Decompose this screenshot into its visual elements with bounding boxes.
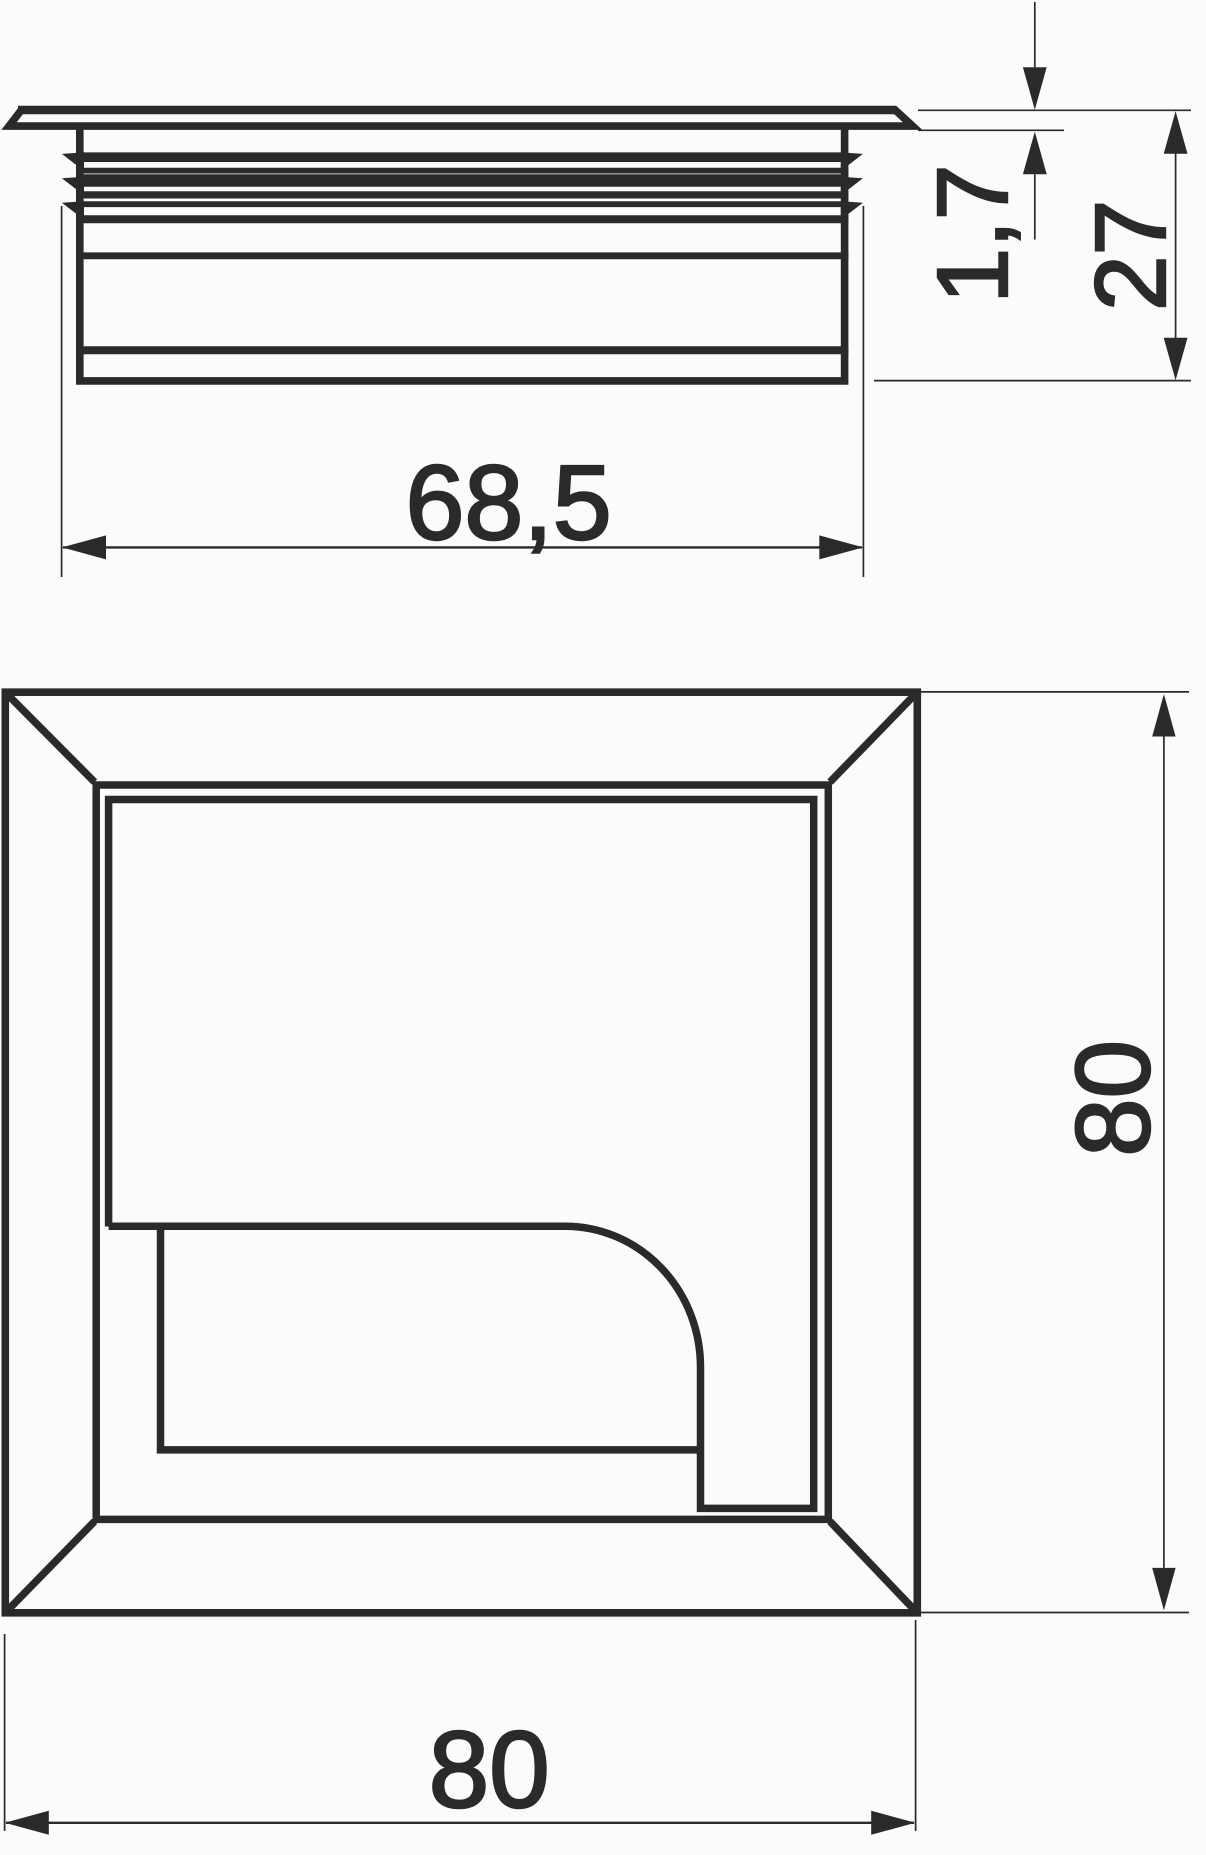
svg-text:27: 27 bbox=[1075, 200, 1187, 311]
svg-text:80: 80 bbox=[429, 1709, 550, 1831]
svg-text:1,7: 1,7 bbox=[917, 164, 1029, 303]
svg-text:80: 80 bbox=[1055, 1040, 1172, 1157]
svg-text:68,5: 68,5 bbox=[405, 444, 611, 562]
